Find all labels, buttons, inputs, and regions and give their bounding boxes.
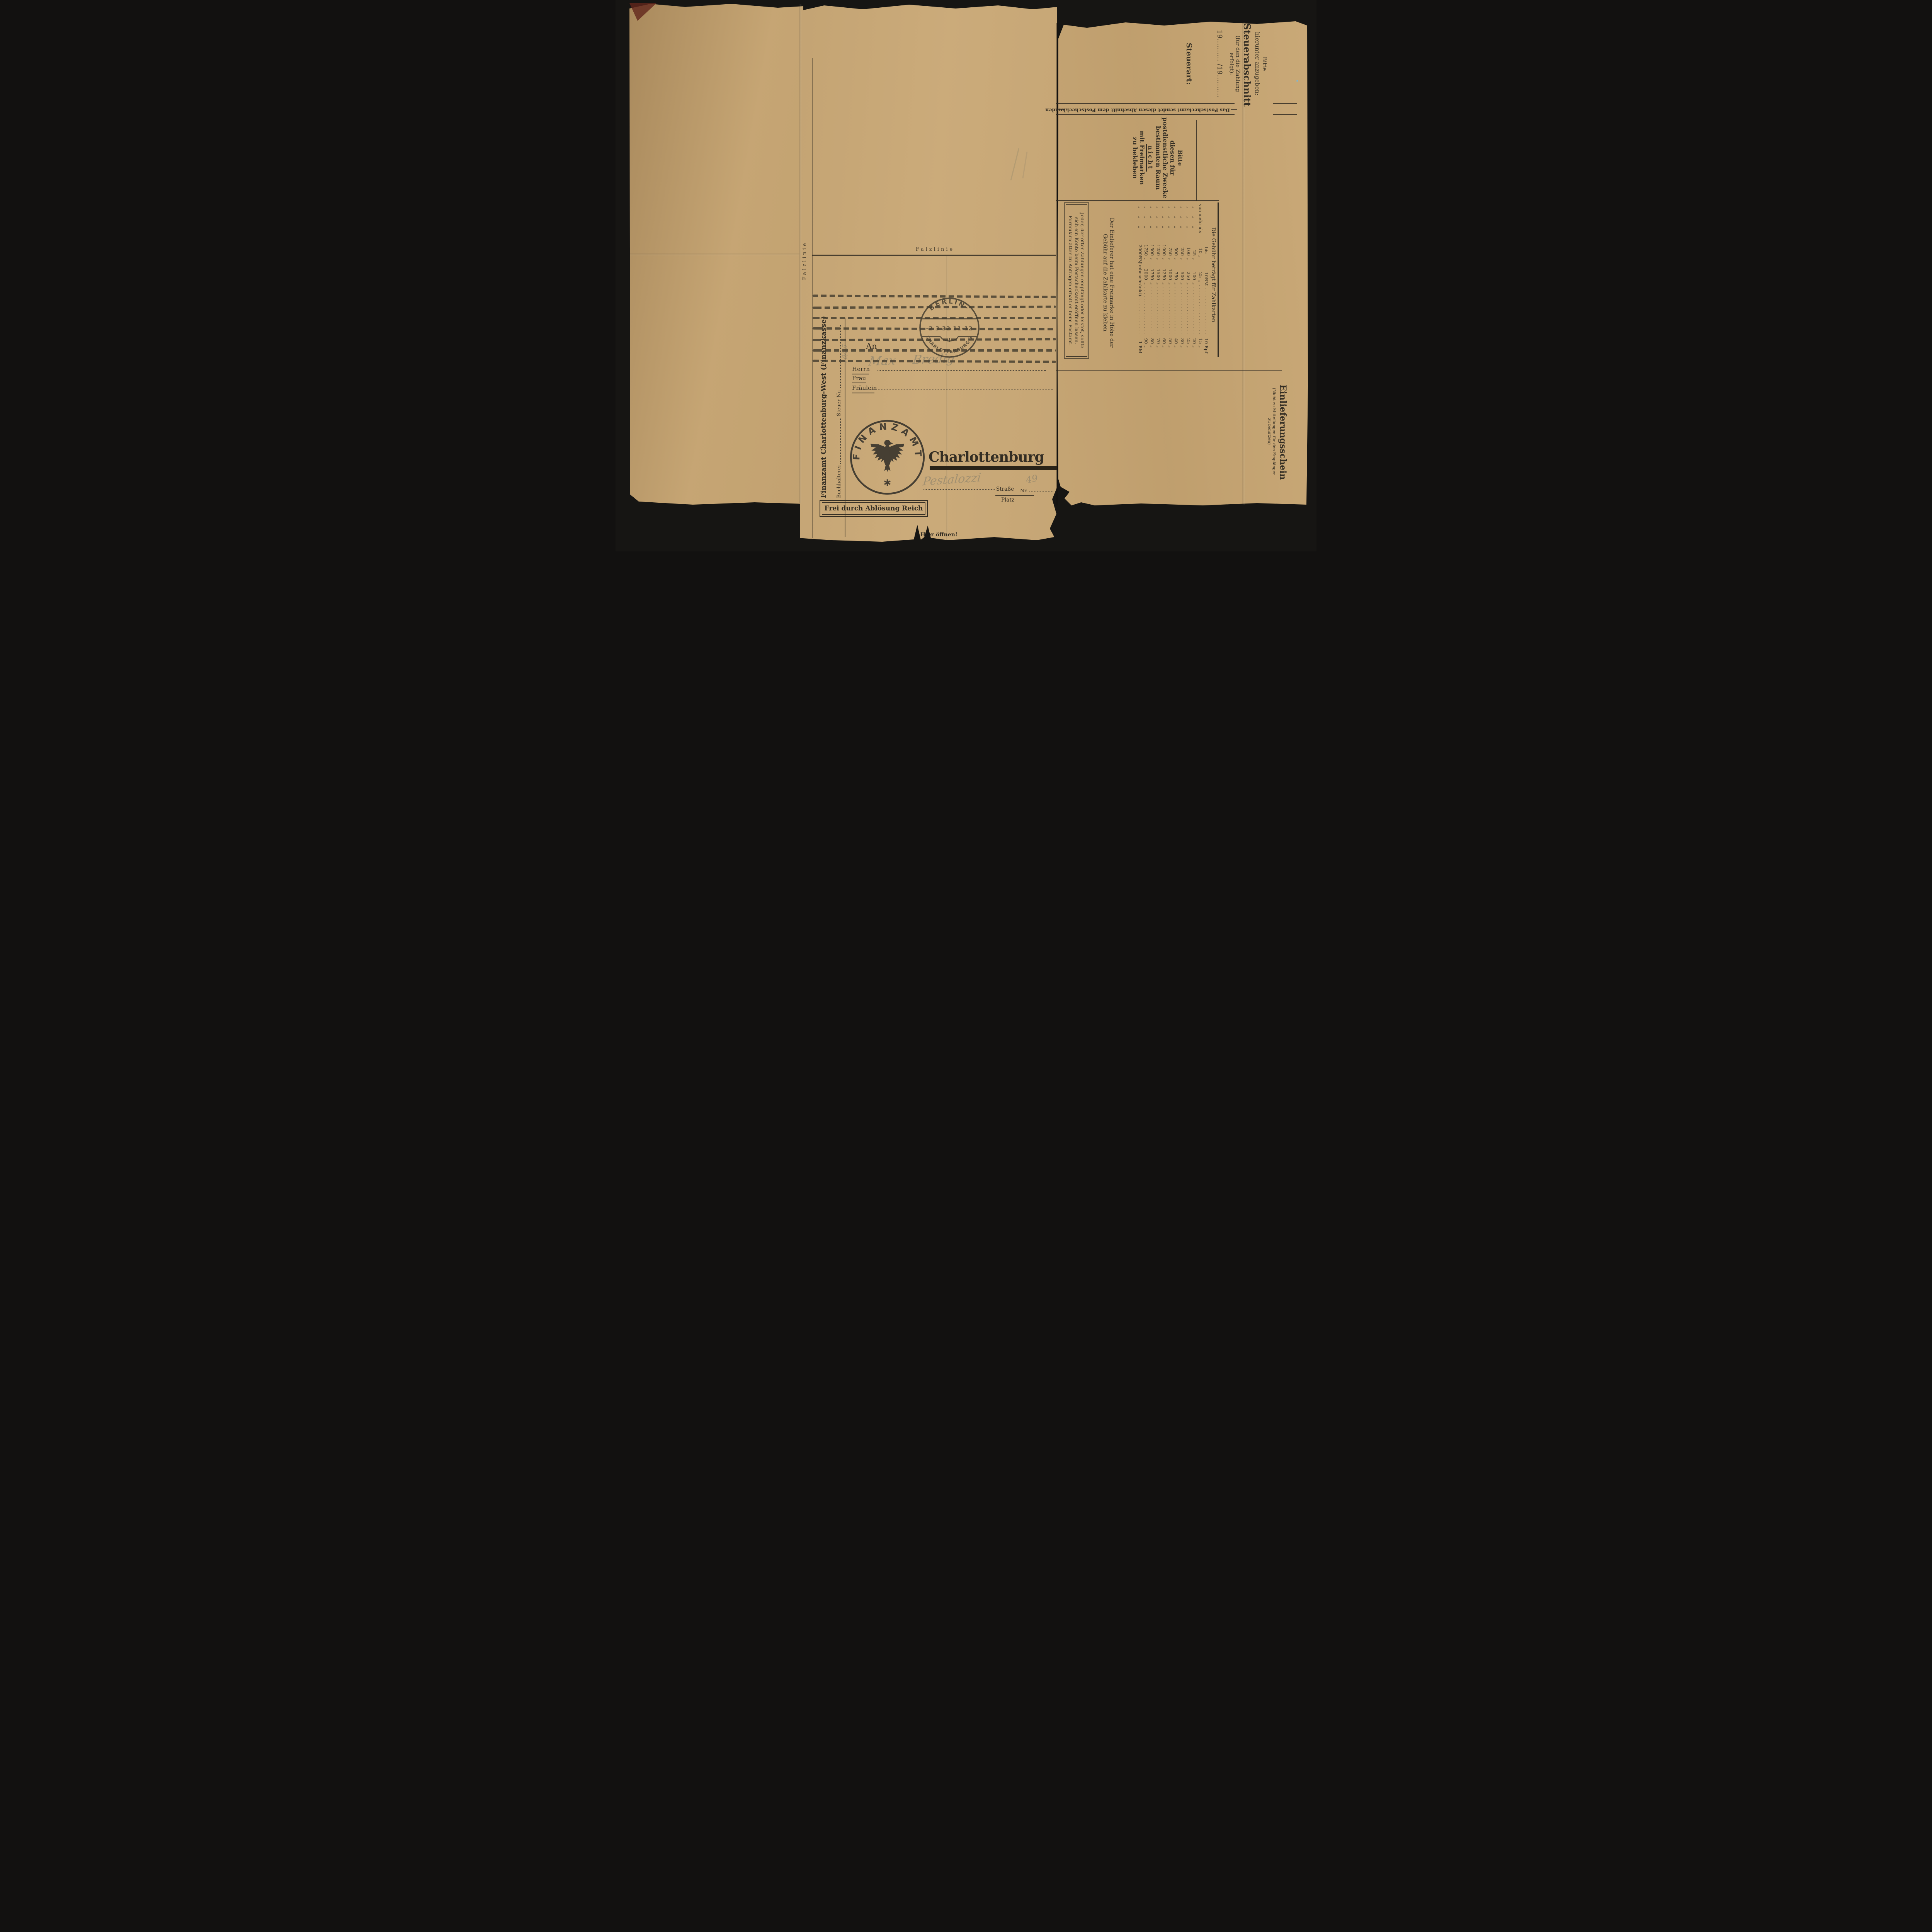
address-dotted-line-2	[857, 389, 1053, 390]
receipt-subtitle: (Nicht zu Mitteilungen für den Empfänger	[1272, 384, 1276, 478]
fee-lead: „ „ „	[1149, 202, 1155, 242]
postal-notice-text: Das Postscheckamt sendet diesen Abschnit…	[1045, 107, 1230, 113]
fold-line-label-vertical: Falzlinie	[802, 227, 810, 294]
fee-dots: . . . . . . . . . . . . . . . . . .	[1191, 287, 1197, 335]
postmark-berlin-charlottenburg: BERLIN- -2 3 32 11-12 I CHARLOTTENBURG 2	[917, 295, 982, 361]
fee-to: 1250	[1161, 262, 1167, 280]
fee-from: 1500	[1149, 242, 1155, 256]
sender-text: Finanzamt Charlottenburg-West (Finanzkas…	[820, 316, 828, 498]
fee-to-unit: „	[1149, 280, 1155, 287]
fee-dots: . . . . . . . . . . . . . . . . . .	[1161, 287, 1167, 335]
fee-lead: „ „ „	[1143, 202, 1149, 242]
note-line: Bitte	[1261, 23, 1268, 104]
note-line: Der Einlieferer hat eine Freimarke in Hö…	[1109, 208, 1115, 357]
note-line: sich ein Konto beim Postscheckamt eröffn…	[1073, 203, 1080, 358]
fee-to: 1000	[1167, 262, 1173, 280]
fee-dots: . . . . . . . . . . . . . . . . . .	[1143, 287, 1149, 335]
address-frau: Frau	[852, 375, 866, 382]
fee-lead: „ „ „	[1155, 202, 1161, 242]
fee-lead: „ „ „	[1179, 202, 1185, 242]
note-line: postdienstliche Zwecke	[1162, 115, 1168, 201]
fee-amount: 20	[1191, 335, 1197, 344]
fee-from-unit: „	[1155, 256, 1161, 262]
note-line: mit Freimarken	[1138, 115, 1145, 201]
fee-from-unit: „	[1179, 256, 1185, 262]
note-line: erfolgt):	[1228, 23, 1235, 104]
note-line: Bitte	[1177, 115, 1183, 201]
stub-rule-bottom-a	[1056, 114, 1235, 115]
fee-amount: 15	[1197, 335, 1203, 344]
fee-from-unit: „	[1167, 256, 1173, 262]
seal-star-icon	[884, 479, 891, 486]
house-number-value: 49	[1025, 473, 1039, 486]
no-stamps-note: Bitte diesen für postdienstliche Zwecke …	[1099, 115, 1185, 201]
note-line: hierunter anzugeben:	[1254, 23, 1260, 104]
stub-bottom-rule	[1056, 370, 1282, 371]
fee-amount: 90	[1143, 335, 1149, 344]
fold-rule	[812, 255, 1056, 256]
years-blank-line: 19.......... /19..........	[1215, 23, 1223, 104]
fee-from: 1000	[1161, 242, 1167, 256]
fee-table-row: bis10RM . . . . . . . . . . . . . . . . …	[1203, 202, 1209, 357]
buchhalterei-label: Buchhalterei	[836, 465, 842, 498]
fee-table: Die Gebühr beträgt für Zahlkarten bis10R…	[1115, 202, 1219, 357]
open-here-label: Hier öffnen!	[910, 532, 968, 538]
fold-label-text: Falzlinie	[916, 247, 954, 252]
fraeulein-underline	[852, 393, 874, 393]
fee-from: 1750	[1143, 242, 1149, 256]
fee-dots: . . . . . . . . . . . . . . . . . .	[1173, 287, 1179, 335]
fee-table-row: „ „ „25„100„ . . . . . . . . . . . . . .…	[1191, 202, 1197, 357]
city-text: Charlottenburg	[929, 449, 1044, 465]
steuerabschnitt-title: Steuerabschnitt	[1242, 23, 1253, 104]
fee-amount: 70	[1155, 335, 1161, 344]
fee-from-unit: „	[1173, 256, 1179, 262]
fee-to: (unbeschränkt)	[1137, 262, 1143, 280]
address-fraeulein: Fräulein	[852, 384, 877, 391]
fee-amount-unit: „	[1143, 344, 1149, 357]
dotted-fill	[840, 325, 841, 388]
fee-to-unit: „	[1191, 280, 1197, 287]
fee-from-unit: „	[1161, 256, 1167, 262]
fee-amount: 60	[1161, 335, 1167, 344]
note-line: diesen für	[1168, 115, 1175, 201]
fee-table-row: „ „ „1750„2000„ . . . . . . . . . . . . …	[1143, 202, 1149, 357]
fee-to-unit: „	[1143, 280, 1149, 287]
blue-speck	[1296, 80, 1298, 82]
platz-label: Platz	[1001, 497, 1014, 503]
fee-table-row: „ „ „500„750„ . . . . . . . . . . . . . …	[1173, 202, 1179, 357]
nr-label-group: Nr.	[1020, 488, 1055, 493]
fee-table-row: „ „ „1500„1750„ . . . . . . . . . . . . …	[1149, 202, 1155, 357]
herrn-label: Herrn	[852, 366, 870, 372]
fee-lead: von mehr als	[1197, 202, 1203, 240]
note-line: (für den die Zahlung	[1235, 23, 1241, 104]
fee-from: 100	[1185, 242, 1191, 256]
address-herrn: Herrn	[852, 366, 870, 372]
fee-from: 750	[1167, 242, 1173, 256]
strasse-text: Straße	[996, 486, 1014, 492]
fee-to: 25	[1197, 259, 1203, 278]
fee-table-row: „ „ „250„500„ . . . . . . . . . . . . . …	[1179, 202, 1185, 357]
franking-text: Frei durch Ablösung Reich	[825, 505, 923, 512]
nicht-emphasized: nicht	[1146, 144, 1154, 172]
fee-table-row: „ „ „2000RM(unbeschränkt) . . . . . . . …	[1137, 202, 1143, 357]
fee-amount-unit: „	[1179, 344, 1185, 357]
fee-to: 1500	[1155, 262, 1161, 280]
fee-from-unit: „	[1191, 256, 1197, 262]
fee-from: 2000	[1137, 242, 1143, 256]
recipient-dotted-line	[878, 370, 1046, 371]
city-underline-bar	[930, 466, 1057, 470]
fraeulein-label: Fräulein	[852, 384, 877, 391]
fee-amount: 1	[1137, 335, 1143, 344]
fee-from: bis	[1203, 240, 1209, 253]
fold-line-label-horizontal: Falzlinie	[908, 247, 962, 252]
strasse-label: Straße	[996, 486, 1014, 492]
fee-to: 750	[1173, 262, 1179, 280]
fee-to-unit: „	[1197, 278, 1203, 285]
receipt-title: Einlieferungsschein	[1278, 384, 1288, 478]
strasse-platz-rule	[995, 495, 1034, 496]
fee-to: 500	[1179, 262, 1185, 280]
fee-from: 250	[1179, 242, 1185, 256]
stub-rule-top-a	[1056, 103, 1235, 104]
scanned-envelope-document: Falzlinie Falzlinie Finanzamt Charlotten…	[616, 0, 1316, 551]
receipt-label: Einlieferungsschein (Nicht zu Mitteilung…	[1261, 384, 1288, 478]
fee-amount-unit: „	[1167, 344, 1173, 357]
fee-amount-unit: „	[1185, 344, 1191, 357]
dotted-fill	[840, 418, 841, 464]
fee-to-unit: „	[1167, 280, 1173, 287]
open-here-text: Hier öffnen!	[920, 532, 957, 538]
fee-dots: . . . . . . . . . . . . . . . . . .	[1203, 285, 1209, 335]
panel-left-border	[812, 58, 813, 538]
postmark-city-top: BERLIN-	[928, 298, 971, 313]
fee-amount-unit: RM	[1137, 344, 1143, 357]
stub-rule-top-b	[1273, 103, 1297, 104]
fee-to-unit: „	[1185, 280, 1191, 287]
fee-dots: . . . . . . . . . . . . . . . . . .	[1167, 287, 1173, 335]
steuerart-label: Steuerart:	[1184, 23, 1193, 104]
fee-table-row: „ „ „750„1000„ . . . . . . . . . . . . .…	[1167, 202, 1173, 357]
fee-to: 1750	[1149, 262, 1155, 280]
fee-amount: 30	[1179, 335, 1185, 344]
city-name: Charlottenburg	[929, 449, 1058, 465]
fee-to: 100	[1191, 262, 1197, 280]
notice-dash-left	[1058, 109, 1065, 110]
fee-table-title: Die Gebühr beträgt für Zahlkarten	[1209, 202, 1217, 357]
fee-amount-unit: „	[1191, 344, 1197, 357]
note-line: zu bekleben	[1131, 115, 1138, 201]
fee-from: 25	[1191, 242, 1197, 256]
fee-lead: „ „ „	[1167, 202, 1173, 242]
fee-lead: „ „ „	[1173, 202, 1179, 242]
fee-lead	[1203, 202, 1209, 240]
finanzamt-seal: FINANZAMT	[848, 418, 927, 497]
fee-dots: . . . . . . . . . . . . . . . . . .	[1197, 285, 1203, 335]
fee-dots: . . . . . . . . . . . . . . . . . .	[1137, 287, 1143, 335]
fee-amount: 40	[1173, 335, 1179, 344]
fee-amount: 50	[1167, 335, 1173, 344]
fee-from-unit: „	[1197, 253, 1203, 259]
fee-lead: „ „ „	[1185, 202, 1191, 242]
street-dotted-line	[923, 489, 995, 490]
notice-dash-right	[1231, 109, 1237, 110]
fee-to-unit: RM	[1203, 278, 1209, 285]
fee-to-unit: „	[1161, 280, 1167, 287]
fee-from: 1250	[1155, 242, 1161, 256]
steuer-nr-label: Steuer-Nr.	[836, 389, 842, 416]
dotted-fill	[1029, 492, 1053, 492]
fee-amount-unit: „	[1155, 344, 1161, 357]
fee-lead: „ „ „	[1137, 202, 1143, 242]
fee-to: 250	[1185, 262, 1191, 280]
nr-text: Nr.	[1020, 488, 1028, 493]
fee-to-unit	[1137, 280, 1143, 287]
fee-amount: 80	[1149, 335, 1155, 344]
svg-text:BERLIN-: BERLIN-	[928, 298, 971, 313]
fee-dots: . . . . . . . . . . . . . . . . . .	[1149, 287, 1155, 335]
fee-amount-unit: „	[1161, 344, 1167, 357]
fee-amount-unit: „	[1197, 344, 1203, 357]
fee-table-row: von mehr als10„25„ . . . . . . . . . . .…	[1197, 202, 1203, 357]
herrn-underline	[852, 374, 869, 374]
fee-to: 10	[1203, 259, 1209, 278]
fee-lead: „ „ „	[1191, 202, 1197, 242]
fee-from-unit: „	[1149, 256, 1155, 262]
fee-amount-unit: „	[1149, 344, 1155, 357]
fee-from-unit: „	[1143, 256, 1149, 262]
receipt-subtitle: zu benutzen)	[1267, 384, 1272, 478]
fold-label-text: Falzlinie	[802, 241, 808, 280]
eagle-icon	[871, 440, 904, 472]
postmark-date: -2 3 32 11-12	[926, 326, 973, 332]
fee-lead: „ „ „	[1161, 202, 1167, 242]
frau-underline	[852, 383, 866, 383]
fee-table-row: „ „ „1000„1250„ . . . . . . . . . . . . …	[1161, 202, 1167, 357]
note-line: Formularblätter zu Anträgen erhält er be…	[1068, 203, 1074, 358]
fee-dots: . . . . . . . . . . . . . . . . . .	[1155, 287, 1161, 335]
note-line: bestimmten Raum	[1155, 115, 1162, 201]
frau-label: Frau	[852, 375, 866, 382]
postal-notice-line: Das Postscheckamt sendet diesen Abschnit…	[1064, 105, 1230, 113]
fee-to-unit: „	[1155, 280, 1161, 287]
fee-dots: . . . . . . . . . . . . . . . . . .	[1185, 287, 1191, 335]
fee-from-unit: RM	[1137, 256, 1143, 262]
fee-to-unit: „	[1173, 280, 1179, 287]
note-line: Gebühr auf die Zahlkarte zu kleben	[1102, 208, 1109, 357]
note-line: Jeder, der öfter Zahlungen empfängt oder…	[1080, 203, 1086, 358]
platz-text: Platz	[1001, 497, 1014, 503]
franking-box: Frei durch Ablösung Reich	[820, 500, 928, 517]
tax-section-note: Bitte hierunter anzugeben: Steuerabschni…	[1148, 23, 1268, 104]
fee-to: 2000	[1143, 262, 1149, 280]
stub-rule-bottom-b	[1273, 114, 1297, 115]
fee-amount-unit: Rpf	[1203, 344, 1209, 357]
fee-from-unit	[1203, 253, 1209, 259]
fee-amount: 25	[1185, 335, 1191, 344]
fee-from: 500	[1173, 242, 1179, 256]
house-number-handwritten: 49	[1025, 473, 1039, 486]
stub-inner-vrule	[1196, 120, 1197, 201]
fee-table-rows: bis10RM . . . . . . . . . . . . . . . . …	[1137, 202, 1209, 357]
fee-dots: . . . . . . . . . . . . . . . . . .	[1179, 287, 1185, 335]
fee-to-unit: „	[1179, 280, 1185, 287]
stamp-required-note: Der Einlieferer hat eine Freimarke in Hö…	[1102, 208, 1115, 357]
fee-table-row: „ „ „1250„1500„ . . . . . . . . . . . . …	[1155, 202, 1161, 357]
fee-from-unit: „	[1185, 256, 1191, 262]
postmark-letter: I	[949, 338, 951, 344]
fee-from: 10	[1197, 240, 1203, 253]
fee-amount-unit: „	[1173, 344, 1179, 357]
fee-table-row: „ „ „100„250„ . . . . . . . . . . . . . …	[1185, 202, 1191, 357]
fee-amount: 10	[1203, 335, 1209, 344]
postscheck-account-box: Jeder, der öfter Zahlungen empfängt oder…	[1064, 202, 1089, 359]
stub-thick-hrule	[1056, 200, 1219, 201]
